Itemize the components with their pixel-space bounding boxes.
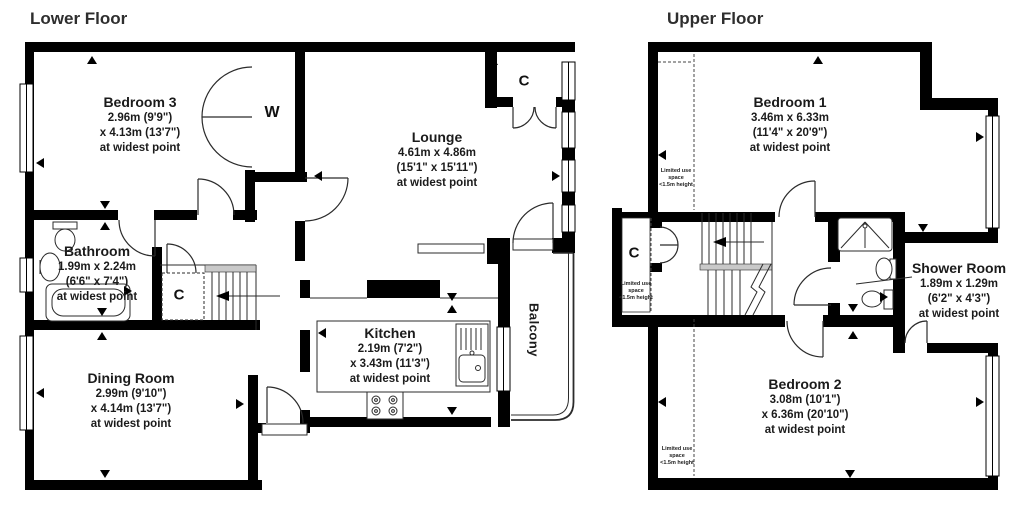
lounge-cupboard-label: C	[519, 73, 530, 90]
shower-room-fixtures	[838, 218, 896, 309]
roof-access-door-icon	[905, 321, 927, 343]
limited-use-note-cupboard: Limited use space <1.5m height	[619, 281, 653, 302]
balcony-outline	[511, 253, 574, 420]
floorplan-drawing	[0, 0, 1024, 529]
lounge-cupboard-doors-icon	[513, 107, 556, 128]
wardrobe-label: W	[264, 104, 279, 122]
wardrobe-bifold-doors-icon	[202, 67, 252, 167]
dining-room-label: Dining Room 2.99m (9'10") x 4.14m (13'7"…	[87, 370, 174, 432]
kitchen-label: Kitchen 2.19m (7'2") x 3.43m (11'3") at …	[350, 325, 431, 387]
lounge-glazed-panel	[418, 244, 484, 253]
hob-icon	[367, 392, 403, 419]
bedroom1-door-icon	[779, 181, 815, 217]
lounge-label: Lounge 4.61m x 4.86m (15'1" x 15'11") at…	[397, 129, 478, 191]
upper-cupboard-doors-icon	[660, 227, 678, 263]
shower-room-door-icon	[794, 268, 831, 305]
limited-use-note-bedroom1: Limited use space <1.5m height	[659, 168, 693, 189]
upper-cupboard-label: C	[629, 245, 640, 262]
bedroom3-door-icon	[198, 179, 234, 215]
stairs-door-icon	[167, 244, 196, 273]
balcony-label: Balcony	[527, 303, 542, 357]
balcony-door-icon	[513, 203, 553, 250]
bedroom1-label: Bedroom 1 3.46m x 6.33m (11'4" x 20'9") …	[750, 94, 831, 156]
floorplan-canvas: Lower Floor Upper Floor Bedroom 3 2.96m …	[0, 0, 1024, 529]
bathroom-label: Bathroom 1.99m x 2.24m (6'6" x 7'4") at …	[57, 243, 138, 305]
limited-use-note-bedroom2: Limited use space <1.5m height	[660, 446, 694, 467]
upper-stairs-icon	[700, 213, 772, 315]
shower-basin-icon	[876, 258, 896, 280]
kitchen-sink-icon	[456, 324, 488, 386]
bedroom3-label: Bedroom 3 2.96m (9'9") x 4.13m (13'7") a…	[100, 94, 181, 156]
stairs-direction-arrow	[216, 291, 229, 301]
shower-toilet-icon	[862, 290, 893, 309]
stairs-direction-arrow	[713, 237, 726, 247]
lounge-door-icon	[305, 178, 348, 221]
upper-floor-title: Upper Floor	[667, 9, 763, 29]
bedroom2-label: Bedroom 2 3.08m (10'1") x 6.36m (20'10")…	[762, 376, 849, 438]
shower-tray-icon	[838, 218, 892, 251]
bedroom2-door-icon	[787, 321, 823, 357]
lower-floor-title: Lower Floor	[30, 9, 127, 29]
stairs-cupboard-label: C	[174, 287, 185, 304]
shower-room-label: Shower Room 1.89m x 1.29m (6'2" x 4'3") …	[912, 260, 1006, 322]
